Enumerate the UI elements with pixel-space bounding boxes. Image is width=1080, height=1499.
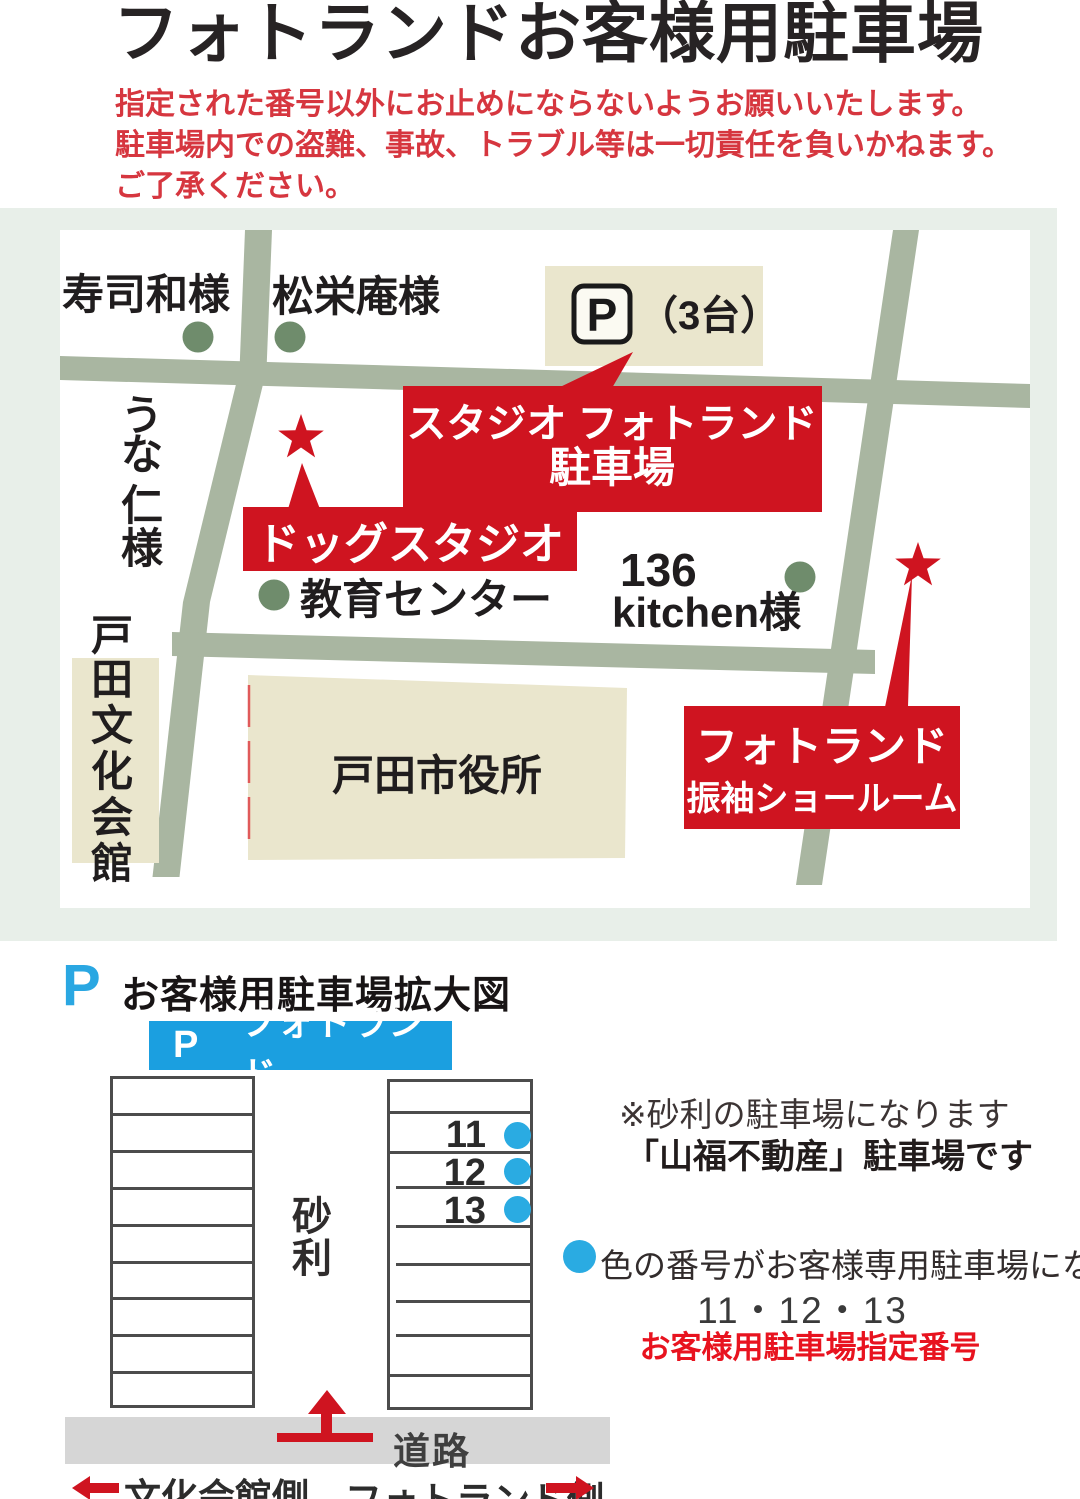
parking-sign-p: P xyxy=(587,289,618,341)
notice-line-2: 駐車場内での盗難、事故、トラブル等は一切責任を負いかねます。 xyxy=(115,125,1012,166)
spot-dot-13-icon xyxy=(504,1196,531,1223)
designated-numbers-caption: お客様用駐車場指定番号 xyxy=(610,1322,1010,1367)
notice-text: 指定された番号以外にお止めにならないようお願いいたします。 駐車場内での盗難、事… xyxy=(115,84,1012,207)
left-parking-grid xyxy=(110,1076,255,1408)
grid-divider xyxy=(396,1300,530,1303)
section-p-icon: P xyxy=(62,952,101,1019)
gravel-label: 砂 利 xyxy=(288,1196,336,1280)
parking-capacity-label: （3台） xyxy=(638,294,780,338)
studio-callout-line1: スタジオ フォトランド xyxy=(406,402,817,446)
shoeian-dot-icon xyxy=(275,322,306,353)
spot-number-12: 12 xyxy=(442,1155,486,1191)
page-title: フォトランドお客様用駐車場 xyxy=(113,0,984,70)
studio-callout-line2: 駐車場 xyxy=(549,444,675,491)
photoland-banner: P フォトランド xyxy=(149,1021,452,1070)
owner-note: 「山福不動産」駐車場です xyxy=(625,1129,1033,1178)
grid-divider xyxy=(396,1334,530,1337)
kitchen-label-line2: kitchen様 xyxy=(612,589,802,636)
grid-divider xyxy=(396,1263,530,1266)
right-arrow-icon xyxy=(576,1476,594,1499)
kyoiku-label: 教育センター xyxy=(300,576,552,623)
bunkakaikan-label: 戸田文化会館 xyxy=(91,612,133,887)
grid-divider xyxy=(113,1113,252,1116)
grid-divider xyxy=(390,1374,530,1377)
shiyakusho-label: 戸田市役所 xyxy=(332,752,542,799)
grid-divider xyxy=(113,1150,252,1153)
road-vertical-left-top xyxy=(240,230,273,370)
legend-dot-icon xyxy=(563,1240,596,1273)
unani-label: うな仁様 xyxy=(121,392,164,572)
grid-divider xyxy=(113,1334,252,1337)
road-label: 道路 xyxy=(393,1421,471,1475)
right-parking-grid: 11 12 13 xyxy=(387,1079,533,1410)
grid-divider xyxy=(113,1297,252,1300)
grid-divider xyxy=(113,1261,252,1264)
sushiwa-label: 寿司和様 xyxy=(62,271,231,318)
area-map: 寿司和様 松栄庵様 うな仁様 教育センター 136 kitchen様 戸田市役所… xyxy=(60,230,1030,908)
parking-flyer: フォトランドお客様用駐車場 指定された番号以外にお止めにならないようお願いいたし… xyxy=(0,0,1080,1499)
banner-p-icon: P xyxy=(173,1024,198,1067)
left-arrow-shaft xyxy=(89,1483,119,1493)
showroom-callout-line1: フォトランド xyxy=(696,723,948,770)
grid-divider xyxy=(113,1371,252,1374)
entrance-arrow-icon xyxy=(321,1412,332,1441)
left-arrow-icon xyxy=(72,1476,90,1499)
entrance-arrowhead-icon xyxy=(308,1390,346,1414)
sushiwa-dot-icon xyxy=(183,322,214,353)
dog-callout-label: ドッグスタジオ xyxy=(256,520,564,569)
grid-divider xyxy=(113,1224,252,1227)
map-panel: 寿司和様 松栄庵様 うな仁様 教育センター 136 kitchen様 戸田市役所… xyxy=(0,208,1057,941)
kitchen-dot-icon xyxy=(785,562,816,593)
grid-divider xyxy=(113,1187,252,1190)
notice-line-1: 指定された番号以外にお止めにならないようお願いいたします。 xyxy=(115,84,1012,125)
kyoiku-dot-icon xyxy=(259,580,290,611)
showroom-callout-line2: 振袖ショールーム xyxy=(687,780,958,818)
spot-dot-12-icon xyxy=(504,1158,531,1185)
left-direction-label: 文化会館側 xyxy=(124,1467,309,1499)
notice-line-3: ご了承ください。 xyxy=(115,166,1012,207)
shoeian-label: 松栄庵様 xyxy=(272,273,441,320)
right-arrow-shaft xyxy=(546,1483,576,1493)
spot-number-11: 11 xyxy=(442,1117,486,1153)
spot-dot-11-icon xyxy=(504,1122,531,1149)
spot-number-13: 13 xyxy=(442,1193,486,1229)
